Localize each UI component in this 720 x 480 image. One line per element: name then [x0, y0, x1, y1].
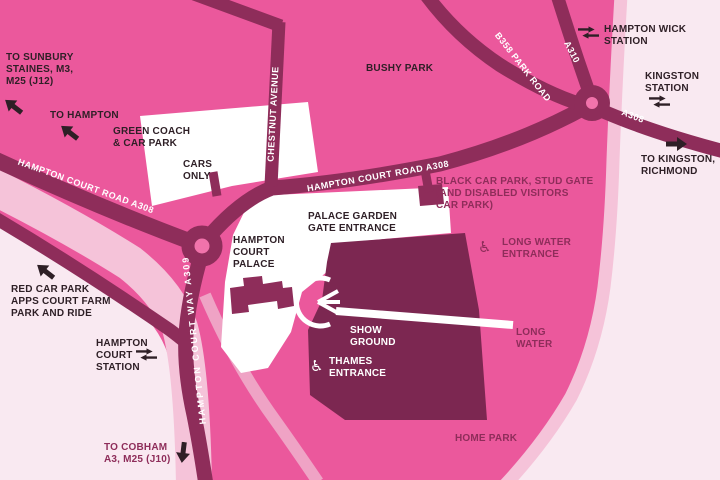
wheelchair-icon: ♿ — [478, 240, 491, 255]
hampton-court-map: TO SUNBURY STAINES, M3, M25 (J12) TO HAM… — [0, 0, 720, 480]
label-line: CARS — [183, 159, 212, 171]
rail-icon — [649, 95, 670, 108]
label-hampton-court-palace: HAMPTON COURT PALACE — [233, 235, 285, 270]
label-line: SHOW — [350, 325, 396, 337]
road-stub-stud-gate — [425, 170, 429, 192]
label-line: ENTRANCE — [502, 249, 571, 261]
label-to-hampton: TO HAMPTON — [50, 110, 119, 122]
label-line: RED CAR PARK — [11, 284, 111, 296]
label-home-park: HOME PARK — [455, 433, 517, 445]
roundabout-hampton-court — [188, 232, 216, 260]
label-line: APPS COURT FARM — [11, 296, 111, 308]
label-line: STATION — [604, 36, 686, 48]
label-line: LONG WATER — [502, 237, 571, 249]
label-cars-only: CARS ONLY — [183, 159, 212, 183]
label-long-water-entrance: LONG WATER ENTRANCE — [502, 237, 571, 261]
arrow-icon — [666, 136, 688, 152]
rail-icon — [578, 26, 599, 39]
label-line: PALACE GARDEN — [308, 211, 397, 223]
label-line: A3, M25 (J10) — [104, 454, 171, 466]
label-line: HAMPTON WICK — [604, 24, 686, 36]
show-ground-area — [308, 233, 487, 420]
label-line: ONLY — [183, 171, 212, 183]
label-line: THAMES — [329, 356, 386, 368]
map-base-graphic — [0, 0, 720, 480]
label-line: M25 (J12) — [6, 76, 74, 88]
rail-icon — [136, 348, 157, 361]
roundabout-kingston — [580, 91, 604, 115]
label-kingston-station: KINGSTON STATION — [645, 71, 699, 95]
label-thames-entrance: THAMES ENTRANCE — [329, 356, 386, 380]
label-show-ground: SHOW GROUND — [350, 325, 396, 349]
label-line: STAINES, M3, — [6, 64, 74, 76]
label-line: GREEN COACH — [113, 126, 190, 138]
label-line: KINGSTON — [645, 71, 699, 83]
label-to-sunbury: TO SUNBURY STAINES, M3, M25 (J12) — [6, 52, 74, 87]
label-line: HOME PARK — [455, 433, 517, 445]
label-line: WATER — [516, 339, 552, 351]
label-bushy-park: BUSHY PARK — [366, 63, 433, 75]
label-line: BLACK CAR PARK, STUD GATE — [436, 176, 593, 188]
label-line: GROUND — [350, 337, 396, 349]
road-stub-cars-only — [213, 172, 217, 196]
label-line: HAMPTON — [233, 235, 285, 247]
label-red-car-park: RED CAR PARK APPS COURT FARM PARK AND RI… — [11, 284, 111, 319]
label-line: STATION — [96, 362, 148, 374]
label-to-cobham: TO COBHAM A3, M25 (J10) — [104, 442, 171, 466]
label-line: CAR PARK) — [436, 200, 593, 212]
label-line: TO COBHAM — [104, 442, 171, 454]
label-palace-garden-gate: PALACE GARDEN GATE ENTRANCE — [308, 211, 397, 235]
label-line: (AND DISABLED VISITORS — [436, 188, 593, 200]
label-line: LONG — [516, 327, 552, 339]
label-line: RICHMOND — [641, 166, 715, 178]
label-line: TO HAMPTON — [50, 110, 119, 122]
label-line: COURT — [233, 247, 285, 259]
label-line: ENTRANCE — [329, 368, 386, 380]
label-line: GATE ENTRANCE — [308, 223, 397, 235]
label-line: PARK AND RIDE — [11, 308, 111, 320]
label-line: & CAR PARK — [113, 138, 190, 150]
wheelchair-icon: ♿ — [310, 359, 323, 374]
label-hampton-wick-station: HAMPTON WICK STATION — [604, 24, 686, 48]
label-green-coach-car-park: GREEN COACH & CAR PARK — [113, 126, 190, 150]
label-line: TO SUNBURY — [6, 52, 74, 64]
label-black-car-park: BLACK CAR PARK, STUD GATE (AND DISABLED … — [436, 176, 593, 211]
label-line: TO KINGSTON, — [641, 154, 715, 166]
label-line: PALACE — [233, 259, 285, 271]
label-long-water: LONG WATER — [516, 327, 552, 351]
label-line: STATION — [645, 83, 699, 95]
label-line: BUSHY PARK — [366, 63, 433, 75]
arrow-icon — [174, 441, 193, 465]
label-to-kingston-richmond: TO KINGSTON, RICHMOND — [641, 154, 715, 178]
